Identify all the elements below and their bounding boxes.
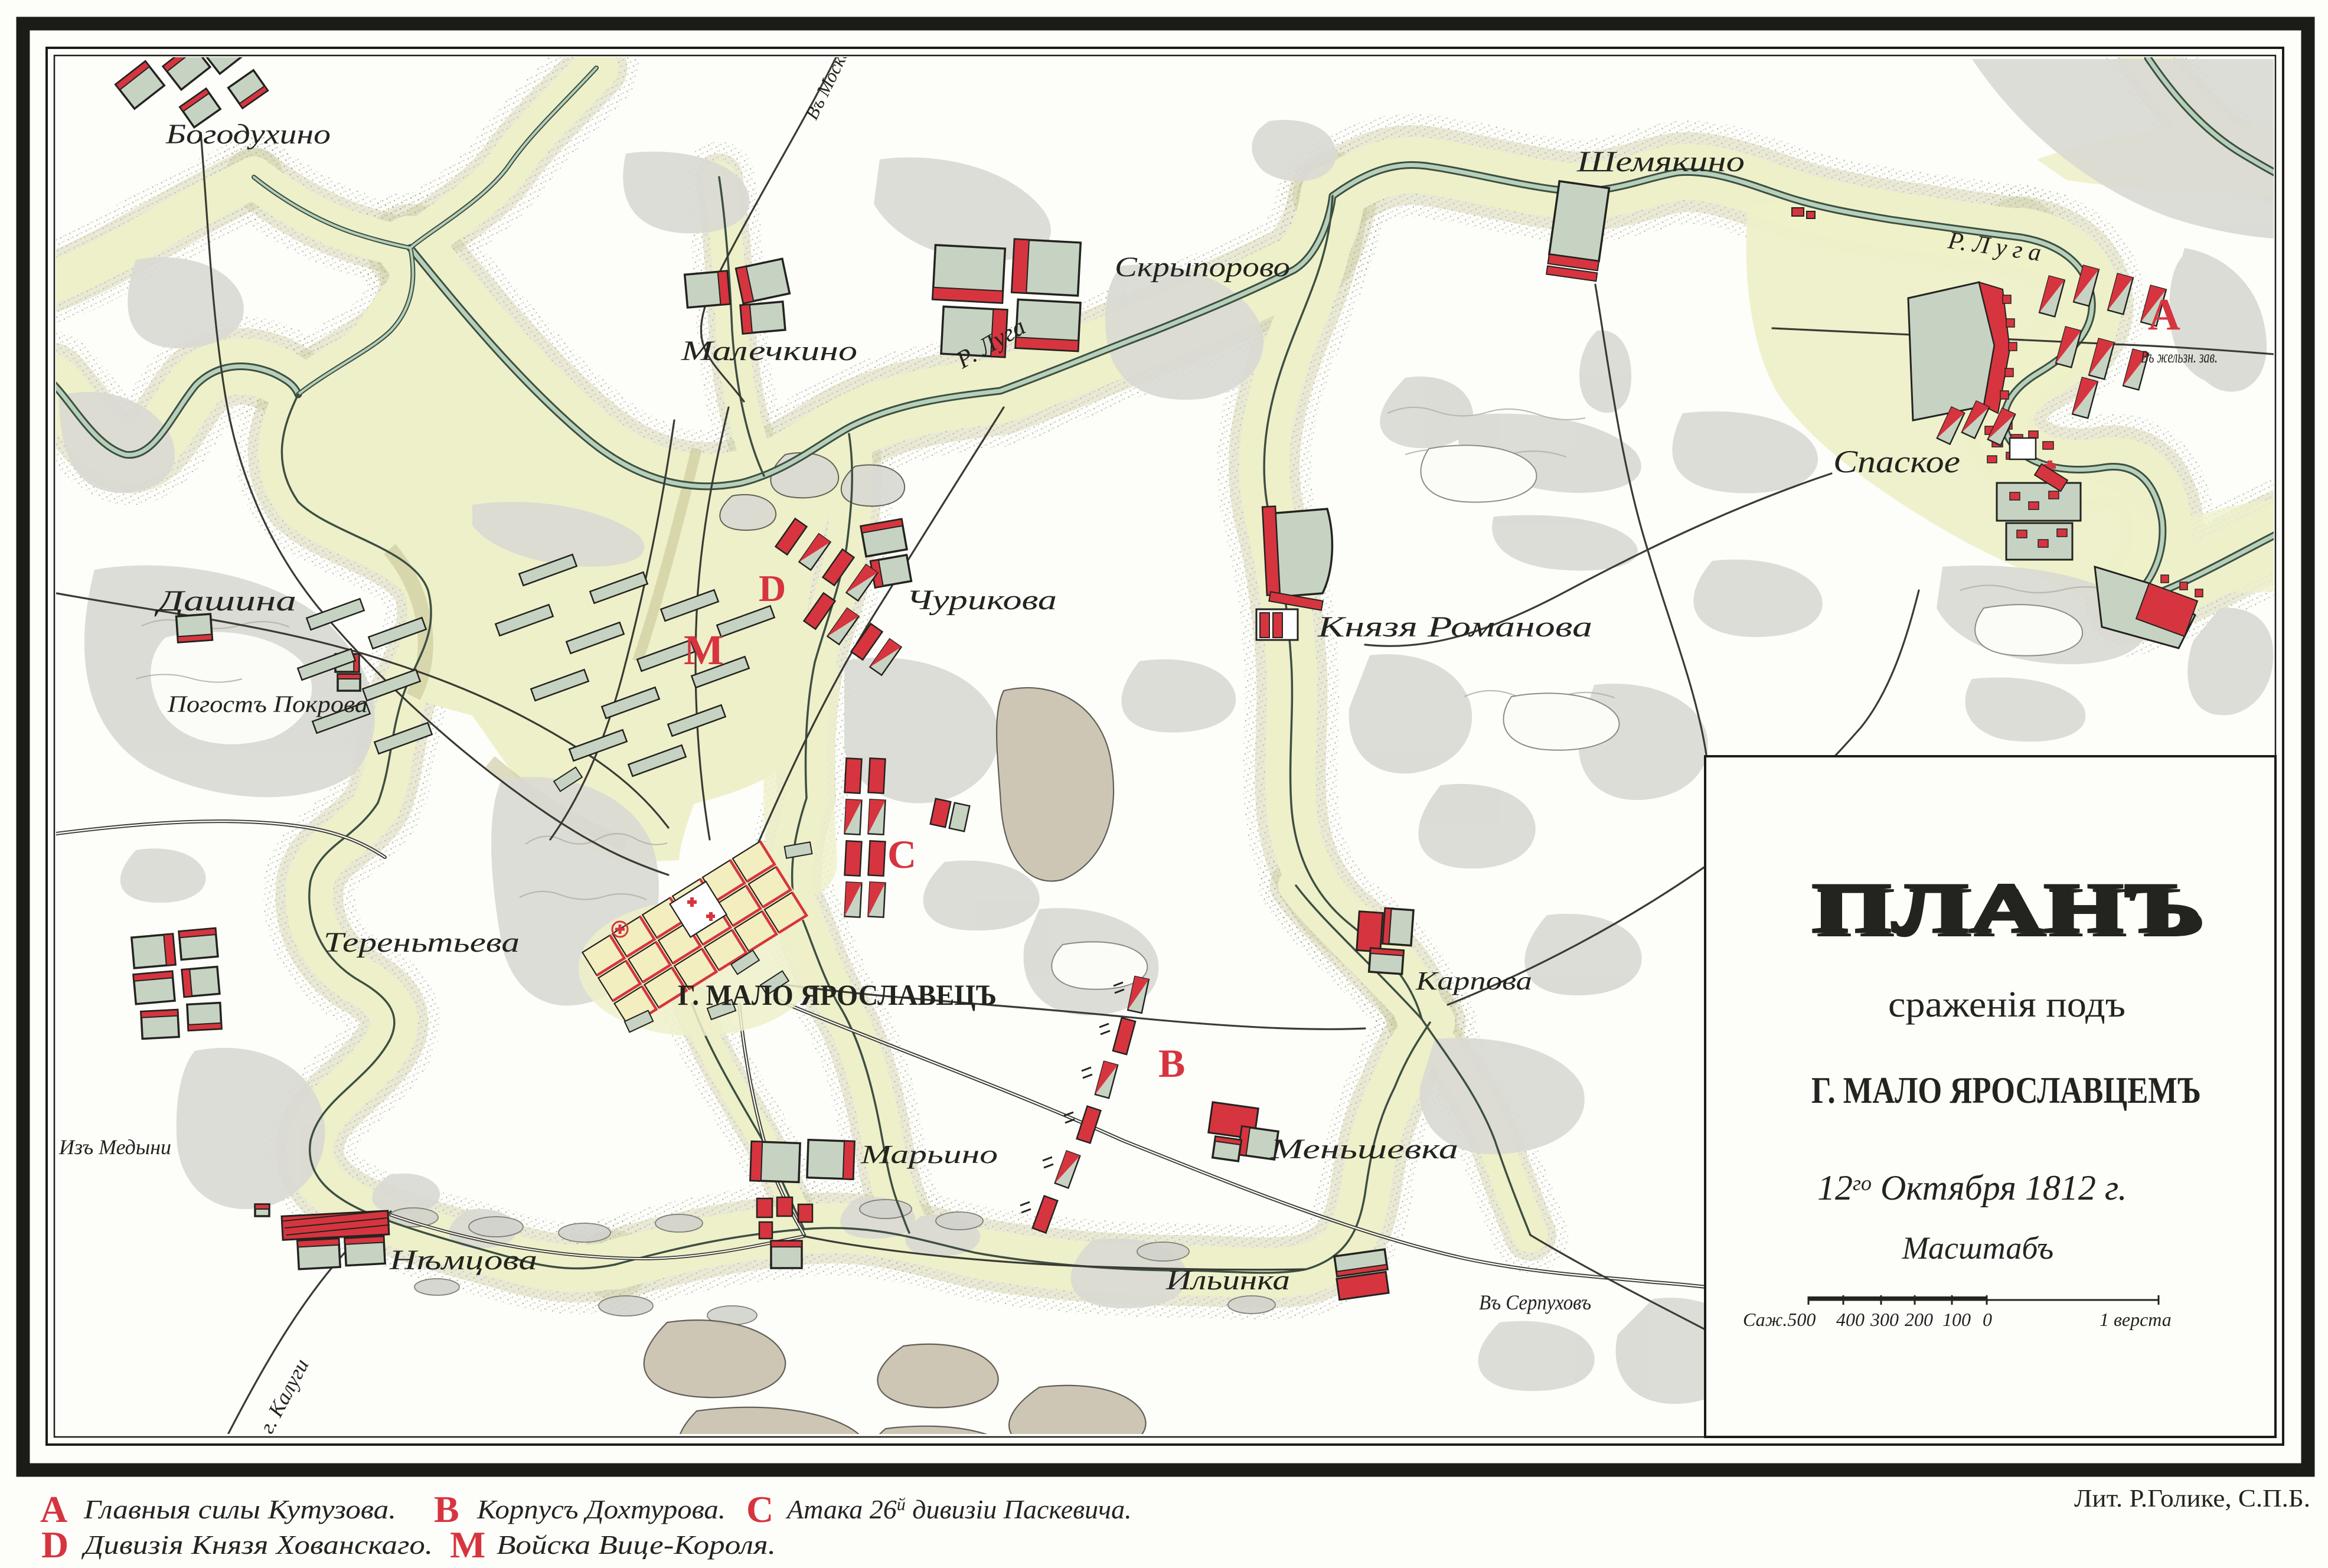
svg-text:Въ жельзн. зав.: Въ жельзн. зав. [2141, 347, 2218, 367]
svg-text:Скрыпорово: Скрыпорово [1115, 251, 1290, 283]
svg-text:D: D [41, 1524, 68, 1566]
svg-text:Лит. Р.Голике, С.П.Б.: Лит. Р.Голике, С.П.Б. [2074, 1485, 2310, 1513]
svg-text:Главныя силы Кутузова.: Главныя силы Кутузова. [83, 1494, 396, 1524]
svg-text:Погостъ Покрова: Погостъ Покрова [167, 691, 368, 717]
svg-text:Богодухино: Богодухино [165, 119, 331, 150]
svg-text:Нѣмцова: Нѣмцова [389, 1244, 537, 1276]
svg-text:1 верста: 1 верста [2100, 1309, 2172, 1330]
svg-text:Князя Романова: Князя Романова [1317, 610, 1592, 643]
svg-text:Ильинка: Ильинка [1165, 1265, 1290, 1296]
svg-text:Карпова: Карпова [1415, 966, 1532, 995]
svg-text:Изъ Медыни: Изъ Медыни [58, 1135, 171, 1159]
svg-text:M: M [684, 626, 724, 674]
svg-text:0: 0 [1983, 1309, 1992, 1330]
svg-text:B: B [1158, 1041, 1185, 1086]
svg-text:Саж.500: Саж.500 [1743, 1309, 1816, 1330]
svg-text:Спаское: Спаское [1833, 444, 1960, 479]
svg-text:Масштабъ: Масштабъ [1902, 1230, 2053, 1266]
svg-text:C: C [746, 1488, 773, 1530]
svg-text:Малечкино: Малечкино [681, 335, 857, 367]
svg-text:200: 200 [1905, 1309, 1933, 1330]
svg-text:M: M [450, 1524, 485, 1566]
svg-text:сраженія подъ: сраженія подъ [1888, 985, 2125, 1025]
svg-text:ПЛАНЪ: ПЛАНЪ [1811, 868, 2203, 948]
svg-text:Корпусъ Дохтурова.: Корпусъ Дохтурова. [476, 1494, 726, 1524]
svg-text:Дашина: Дашина [154, 584, 296, 617]
svg-text:Войска Вице-Короля.: Войска Вице-Короля. [497, 1530, 776, 1560]
svg-text:Шемякино: Шемякино [1576, 145, 1745, 178]
svg-text:Чурикова: Чурикова [906, 584, 1057, 616]
svg-text:C: C [887, 832, 916, 877]
svg-text:Г. МАЛО ЯРОСЛАВЕЦЪ: Г. МАЛО ЯРОСЛАВЕЦЪ [678, 978, 997, 1011]
svg-text:Меньшевка: Меньшевка [1270, 1133, 1458, 1165]
svg-text:Г. МАЛО ЯРОСЛАВЦЕМЪ: Г. МАЛО ЯРОСЛАВЦЕМЪ [1811, 1069, 2201, 1111]
svg-text:D: D [759, 567, 786, 609]
svg-text:Въ Серпуховъ: Въ Серпуховъ [1479, 1291, 1591, 1314]
svg-text:Дивизія Князя Хованскаго.: Дивизія Князя Хованскаго. [81, 1530, 433, 1560]
svg-text:Марьино: Марьино [860, 1140, 998, 1169]
svg-text:100: 100 [1942, 1309, 1971, 1330]
svg-text:300: 300 [1870, 1309, 1899, 1330]
svg-text:A: A [2148, 290, 2180, 339]
svg-text:Тереньтьева: Тереньтьева [324, 927, 520, 958]
svg-text:Атака 26й дивизіи Паскевича.: Атака 26й дивизіи Паскевича. [785, 1494, 1132, 1524]
svg-text:400: 400 [1836, 1309, 1865, 1330]
